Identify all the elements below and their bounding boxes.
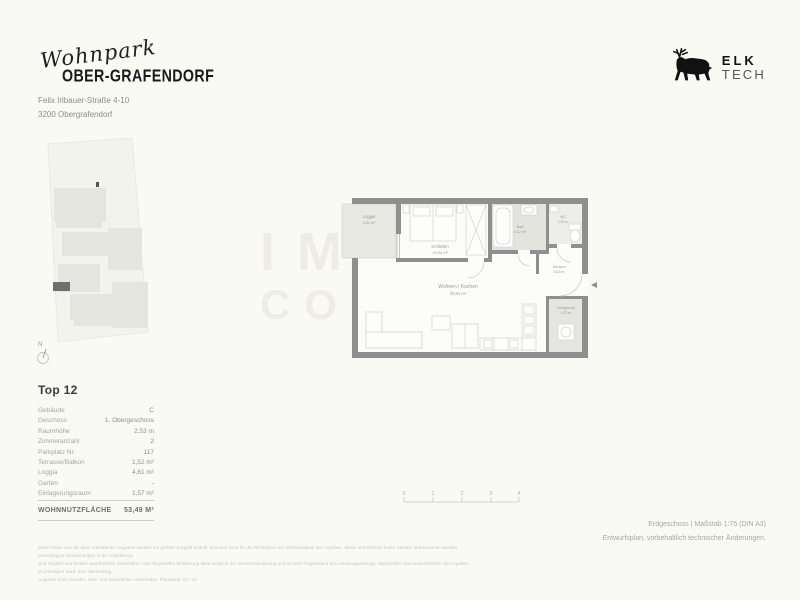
room-area-wc: 1,20 m² xyxy=(558,220,569,224)
table-row: Loggia4,61 m² xyxy=(38,468,154,478)
highlighted-unit xyxy=(53,282,70,291)
plan-note: Erdgeschoss | Maßstab 1:75 (DIN A3) Entw… xyxy=(603,518,766,545)
disclaimer-line2: sind möglich und bleiben ausdrücklich vo… xyxy=(38,560,474,576)
room-area-bad: 4,12 m² xyxy=(514,230,527,234)
moose-icon xyxy=(670,46,716,89)
room-area-einlagerung: 1,57 m² xyxy=(561,311,572,315)
room-area-wohnen: 30,61 m² xyxy=(450,291,467,296)
living-area-total: WOHNNUTZFLÄCHE 53,49 M² xyxy=(38,500,154,521)
unit-info-table: GebäudeC Geschoss1. Obergeschoss Raumhöh… xyxy=(38,406,154,500)
floor-plan: Loggia 4,61 m² Schlafen 13,94 m² Bad 4,1… xyxy=(340,192,600,369)
table-row: Geschoss1. Obergeschoss xyxy=(38,416,154,426)
room-area-loggia: 4,61 m² xyxy=(363,221,377,225)
scale-tick-2: 2 xyxy=(460,491,463,497)
project-address: Felix Irlbauer-Straße 4-10 3200 Obergraf… xyxy=(38,94,129,122)
room-label-einlagerung: Einlagerung xyxy=(557,306,574,310)
table-row: Parkplatz Nr.117 xyxy=(38,448,154,458)
table-row: GebäudeC xyxy=(38,406,154,416)
site-marker xyxy=(96,182,99,187)
scale-tick-1: 1 xyxy=(431,491,434,497)
north-label: N xyxy=(38,342,42,348)
address-line1: Felix Irlbauer-Straße 4-10 xyxy=(38,94,129,108)
room-label-loggia: Loggia xyxy=(363,214,376,219)
plan-revision-note: Entwurfsplan, vorbehaltlich technischer … xyxy=(603,532,766,546)
table-row: Zimmeranzahl2 xyxy=(38,437,154,447)
room-label-schlafen: Schlafen xyxy=(431,244,449,249)
room-loggia xyxy=(342,204,396,258)
brand-logo: ELK TECH xyxy=(670,46,766,89)
plan-sheet: { "header": { "project_script": "Wohnpar… xyxy=(0,0,800,600)
scale-tick-3: 3 xyxy=(489,491,492,497)
scale-tick-4: 4 xyxy=(517,491,520,497)
room-area-vorraum: 3,62 m² xyxy=(554,270,565,274)
site-plan xyxy=(34,136,156,353)
entrance-arrow-icon xyxy=(591,282,597,288)
room-label-vorraum: Vorraum xyxy=(553,265,566,269)
address-line2: 3200 Obergrafendorf xyxy=(38,108,129,122)
disclaimer-line1: Diese Pläne und die darin enthaltenen An… xyxy=(38,544,474,560)
table-row: Einlagerungsraum1,57 m² xyxy=(38,489,154,499)
scale-tick-0: 0 xyxy=(402,491,405,497)
table-row: Garten- xyxy=(38,479,154,489)
total-value: 53,49 M² xyxy=(124,507,154,514)
room-area-schlafen: 13,94 m² xyxy=(432,250,448,255)
table-row: Raumhöhe2,53 m xyxy=(38,427,154,437)
plan-info: Erdgeschoss | Maßstab 1:75 (DIN A3) xyxy=(603,518,766,532)
brand-name-tech: TECH xyxy=(722,68,766,82)
table-row: Terrasse/Balkon1,52 m² xyxy=(38,458,154,468)
project-title: OBER-GRAFENDORF xyxy=(62,66,214,86)
total-label: WOHNNUTZFLÄCHE xyxy=(38,507,111,514)
unit-title: Top 12 xyxy=(38,383,78,397)
room-label-bad: Bad xyxy=(516,224,523,229)
brand-name-elk: ELK xyxy=(722,54,766,68)
disclaimer-line3: Angaben ohne Gewähr. Satz- und Druckfehl… xyxy=(38,576,474,584)
scale-bar: 0 1 2 3 4 xyxy=(400,489,522,512)
disclaimer: Diese Pläne und die darin enthaltenen An… xyxy=(38,544,474,584)
room-label-wc: WC xyxy=(560,215,566,219)
room-label-wohnen: Wohnen | Kochen xyxy=(438,284,478,290)
north-indicator: N xyxy=(34,338,58,373)
